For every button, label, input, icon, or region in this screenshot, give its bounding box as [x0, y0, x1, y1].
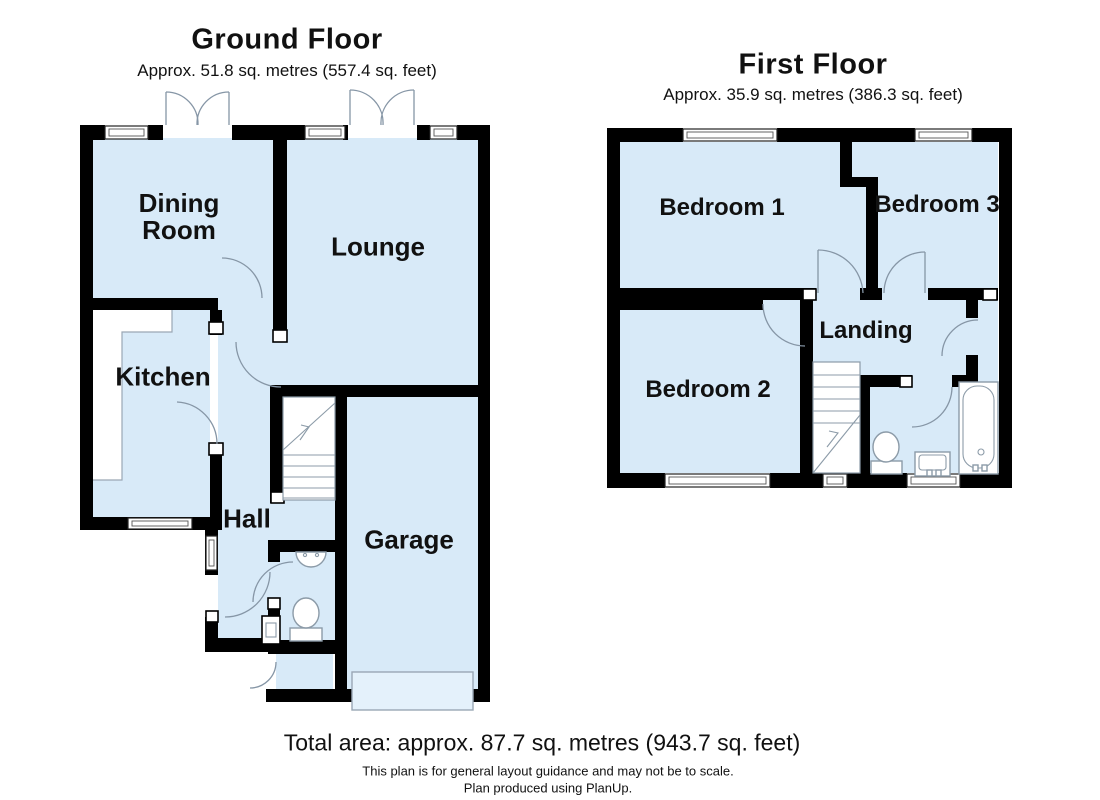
stairs-ground	[283, 397, 335, 500]
room-lounge	[287, 138, 478, 385]
garage-door	[352, 672, 473, 710]
room-label-kitchen: Kitchen	[115, 364, 210, 391]
first-floor-subtitle: Approx. 35.9 sq. metres (386.3 sq. feet)	[663, 85, 963, 105]
window	[128, 518, 192, 529]
toilet-icon	[290, 598, 322, 641]
window	[683, 129, 777, 141]
floorplan-drawing	[0, 0, 1100, 800]
first-floor-plan	[607, 128, 1012, 488]
disclaimer-text: This plan is for general layout guidance…	[362, 764, 733, 779]
window	[915, 129, 972, 141]
window	[430, 126, 457, 139]
window	[305, 126, 345, 139]
window	[665, 474, 770, 487]
sink-icon	[915, 452, 950, 476]
window	[823, 474, 847, 487]
total-area-text: Total area: approx. 87.7 sq. metres (943…	[284, 730, 801, 757]
bathtub-icon	[959, 382, 998, 474]
ground-floor-subtitle: Approx. 51.8 sq. metres (557.4 sq. feet)	[137, 61, 437, 81]
room-kitchen	[93, 310, 210, 517]
ground-floor-title: Ground Floor	[191, 24, 382, 57]
floorplan-page: Ground Floor Approx. 51.8 sq. metres (55…	[0, 0, 1100, 800]
room-label-dining-room: Dining Room	[139, 190, 220, 244]
room-label-lounge: Lounge	[331, 234, 425, 261]
french-doors-lounge	[350, 90, 414, 125]
room-label-bedroom2: Bedroom 2	[645, 376, 770, 404]
window	[105, 126, 148, 139]
first-floor-title: First Floor	[739, 49, 888, 82]
ground-floor-plan	[80, 90, 490, 710]
toilet-icon	[871, 432, 902, 474]
room-label-landing: Landing	[819, 317, 912, 345]
room-label-bedroom1: Bedroom 1	[659, 194, 784, 222]
french-doors-dining	[166, 92, 229, 125]
room-label-hall: Hall	[223, 506, 271, 533]
stairs-first	[813, 362, 860, 473]
room-label-bedroom3: Bedroom 3	[874, 191, 999, 219]
window	[206, 536, 217, 570]
meter-box-icon	[262, 616, 280, 644]
produced-by-text: Plan produced using PlanUp.	[464, 781, 632, 796]
room-label-garage: Garage	[364, 527, 454, 554]
